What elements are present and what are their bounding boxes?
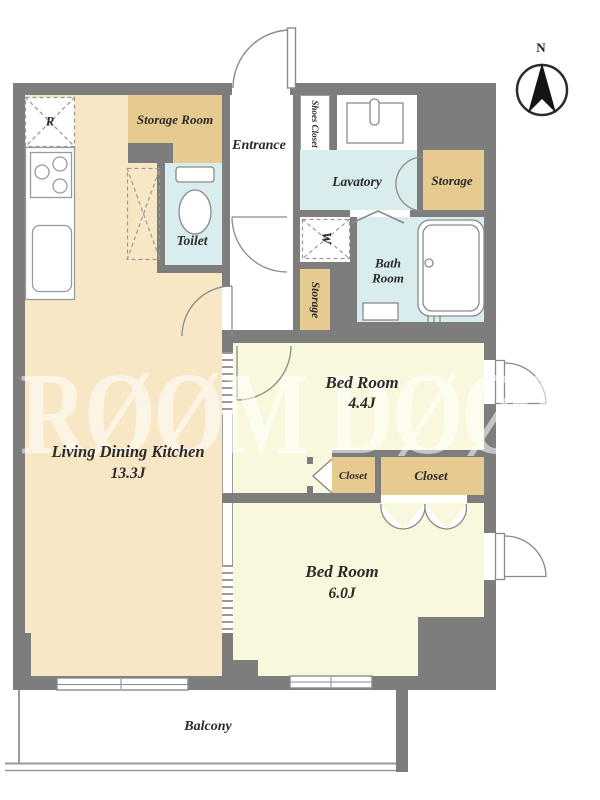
wall-shoes-basin <box>330 95 337 150</box>
partition-seg2 <box>222 493 233 503</box>
storage-corridor-label: Storage <box>309 282 321 318</box>
storage-room-step <box>173 143 222 163</box>
wall-corridor-right <box>293 95 300 343</box>
north-label: N <box>536 40 545 56</box>
right-door2-opening <box>484 533 496 580</box>
bedroom2-outward-door-icon <box>496 534 547 580</box>
bedroom2-name-label: Bed Room <box>305 562 378 582</box>
balcony-label: Balcony <box>184 719 231 735</box>
closet-bifold-post-bottom <box>307 486 313 493</box>
wall-balcony-right <box>396 690 408 772</box>
refrigerator-label: R <box>46 115 54 130</box>
north-compass-icon <box>517 63 567 115</box>
wall-left-step <box>25 633 31 678</box>
wall-under-storage-room <box>128 143 173 163</box>
wall-bedroom-divider-stub <box>467 495 484 503</box>
closet-right-label: Closet <box>414 468 447 484</box>
partition-sliding-door-lower <box>222 565 233 633</box>
ldk-name-label: Living Dining Kitchen <box>51 442 204 462</box>
storage-upper-label: Storage <box>431 173 472 189</box>
wall-bedroom-divider <box>233 493 381 503</box>
partition-seg3 <box>222 633 233 678</box>
wall-top-left <box>13 83 232 95</box>
corridor-floor <box>222 95 300 343</box>
wall-block-bottom-right <box>418 617 496 690</box>
bedroom2-size-label: 6.0J <box>328 585 355 603</box>
entrance-door-opening <box>232 83 290 95</box>
bedroom1-size-label: 4.4J <box>348 395 375 413</box>
wall-top-right <box>290 83 417 95</box>
entrance-label: Entrance <box>232 138 286 154</box>
partition-slot-lower <box>222 503 233 565</box>
bedroom1-name-label: Bed Room <box>325 373 398 393</box>
bath-room-label: Bath Room <box>362 256 414 285</box>
washer-label: W <box>317 232 333 244</box>
room-toilet-floor <box>165 163 222 265</box>
ldk-size-label: 13.3J <box>111 465 146 483</box>
wall-bottom <box>13 676 418 690</box>
entrance-door-icon <box>233 28 296 88</box>
floor-plan: Storage Room Entrance Shoes Closet Lavat… <box>0 0 600 800</box>
wall-mid-band-post <box>222 330 234 343</box>
lavatory-label: Lavatory <box>332 174 382 190</box>
wall-corridor-left <box>222 95 230 287</box>
bath-door-opening <box>350 210 410 217</box>
room-bedroom2-floor <box>233 503 485 617</box>
wall-mid-band <box>234 330 496 343</box>
wall-washer-bath <box>350 217 357 262</box>
wall-block-top-right <box>417 83 496 150</box>
wall-lavatory-storage <box>417 150 423 213</box>
washstand-area <box>337 95 417 150</box>
toilet-label: Toilet <box>176 233 207 249</box>
closet-left-label: Closet <box>339 470 367 482</box>
wall-bath-bottom <box>345 322 496 330</box>
wall-toilet-bottom <box>157 265 230 273</box>
storage-room-label: Storage Room <box>137 112 213 128</box>
wall-toilet-left <box>157 163 165 265</box>
shoes-closet-label: Shoes Closet <box>310 100 320 147</box>
room-bedroom2-floor-lower <box>233 617 418 678</box>
wall-washer-bottom <box>293 262 357 269</box>
